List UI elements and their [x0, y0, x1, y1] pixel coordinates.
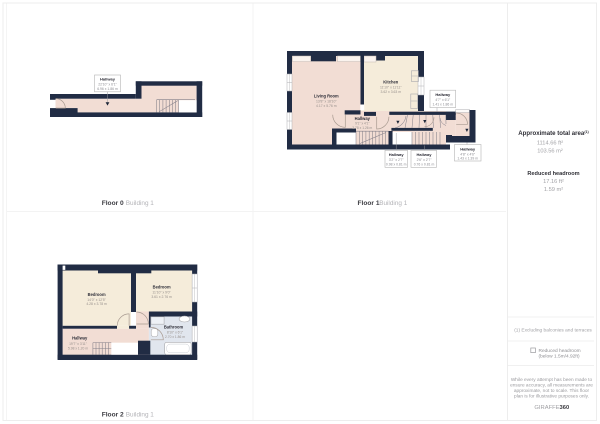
svg-text:Reduced headroom: Reduced headroom: [527, 171, 579, 177]
svg-text:Bedroom: Bedroom: [153, 284, 171, 289]
svg-text:Hallway: Hallway: [417, 152, 433, 157]
svg-text:Building 1: Building 1: [126, 412, 155, 419]
svg-text:Hallway: Hallway: [72, 335, 88, 340]
svg-text:1.43 x 1.39 m: 1.43 x 1.39 m: [457, 157, 478, 161]
svg-text:Floor 2: Floor 2: [102, 412, 124, 419]
svg-text:Living Room: Living Room: [314, 94, 339, 99]
svg-text:2.78 x 1.26 m: 2.78 x 1.26 m: [352, 126, 372, 130]
svg-text:ensure accuracy, all measureme: ensure accuracy, all measurements are: [510, 383, 593, 389]
svg-text:14'0" x 12'5": 14'0" x 12'5": [87, 298, 106, 302]
svg-text:Hallway: Hallway: [100, 77, 116, 82]
svg-text:Hallway: Hallway: [355, 116, 371, 121]
svg-text:0.98 x 0.81 m: 0.98 x 0.81 m: [386, 162, 407, 166]
svg-text:3.62 x 3.63 m: 3.62 x 3.63 m: [381, 90, 402, 94]
svg-text:13'8" x 18'10": 13'8" x 18'10": [316, 100, 337, 104]
svg-text:17.16 ft²: 17.16 ft²: [543, 179, 564, 185]
svg-text:While every attempt has been m: While every attempt has been made to: [511, 377, 593, 383]
svg-text:Hallway: Hallway: [435, 92, 451, 97]
svg-text:3.61 x 2.76 m: 3.61 x 2.76 m: [151, 295, 172, 299]
svg-text:Floor 0: Floor 0: [102, 200, 124, 207]
svg-text:11'10" x 9'0": 11'10" x 9'0": [152, 290, 171, 294]
svg-text:6.96 x 1.86 m: 6.96 x 1.86 m: [97, 87, 118, 91]
svg-text:19'7" x 3'11": 19'7" x 3'11": [69, 342, 88, 346]
svg-text:0.76 x 0.81 m: 0.76 x 0.81 m: [414, 162, 435, 166]
svg-text:Hallway: Hallway: [389, 152, 405, 157]
svg-text:(1) Excluding balconies and te: (1) Excluding balconies and terraces: [514, 327, 592, 333]
svg-text:Hallway: Hallway: [460, 146, 476, 151]
svg-text:2'6" x 2'7": 2'6" x 2'7": [417, 158, 433, 162]
svg-text:Bedroom: Bedroom: [88, 292, 106, 297]
svg-text:Reduced headroom: Reduced headroom: [539, 348, 581, 354]
svg-text:103.56 m²: 103.56 m²: [537, 148, 563, 154]
svg-text:plan is for illustrative purpo: plan is for illustrative purposes only.: [514, 394, 589, 400]
svg-text:4'7" x 6'1": 4'7" x 6'1": [435, 98, 451, 102]
svg-text:11'10" x 11'11": 11'10" x 11'11": [380, 85, 402, 89]
svg-text:4'8" x 4'6": 4'8" x 4'6": [460, 152, 476, 156]
svg-text:Building 1: Building 1: [379, 200, 408, 207]
svg-text:1.41 x 1.86 m: 1.41 x 1.86 m: [433, 102, 454, 106]
svg-text:4.28 x 3.78 m: 4.28 x 3.78 m: [86, 302, 107, 306]
svg-text:(below 1.5m/4.92ft): (below 1.5m/4.92ft): [539, 353, 580, 359]
svg-text:Building 1: Building 1: [126, 200, 155, 207]
svg-text:2.70 x 1.86 m: 2.70 x 1.86 m: [165, 335, 185, 339]
svg-text:4.17 x 5.76 m: 4.17 x 5.76 m: [316, 104, 337, 108]
svg-text:GIRAFFE360: GIRAFFE360: [534, 405, 569, 411]
svg-text:Approximate total area(1): Approximate total area(1): [518, 130, 589, 137]
svg-text:3'2" x 2'7": 3'2" x 2'7": [389, 158, 405, 162]
svg-text:8'10" x 6'1": 8'10" x 6'1": [167, 330, 184, 334]
svg-text:1114.66 ft²: 1114.66 ft²: [537, 141, 563, 147]
svg-text:Kitchen: Kitchen: [383, 79, 399, 84]
svg-text:approximate, not to scale. Thi: approximate, not to scale. This floor: [514, 388, 590, 394]
svg-text:Bathroom: Bathroom: [164, 325, 184, 330]
svg-text:5.98 x 1.20 m: 5.98 x 1.20 m: [68, 347, 88, 351]
svg-text:1.59 m²: 1.59 m²: [544, 187, 563, 193]
svg-text:Floor 1: Floor 1: [358, 200, 380, 207]
svg-text:22'10" x 6'1": 22'10" x 6'1": [98, 83, 117, 87]
svg-text:9'1" x 4'1": 9'1" x 4'1": [355, 122, 370, 126]
